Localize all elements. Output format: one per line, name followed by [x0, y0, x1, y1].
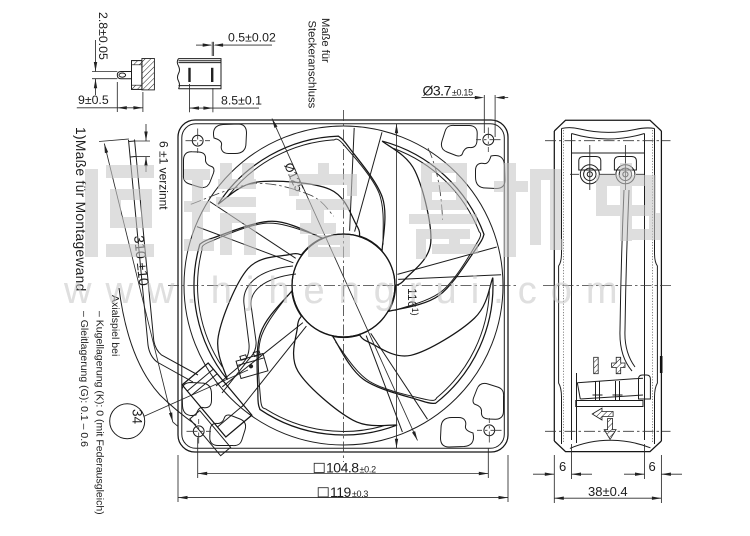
svg-text:Maße für: Maße für [319, 18, 331, 63]
svg-text:6 ±1 verzinnt: 6 ±1 verzinnt [157, 141, 171, 210]
svg-text:6: 6 [649, 459, 656, 474]
svg-text:9±0.5: 9±0.5 [78, 93, 109, 107]
svg-text:Steckeranschluss: Steckeranschluss [306, 21, 318, 109]
svg-text:6: 6 [559, 459, 566, 474]
svg-text:– Kugellagerung (K): 0 (mit Fe: – Kugellagerung (K): 0 (mit Federausglei… [94, 311, 106, 515]
svg-text:0.5±0.02: 0.5±0.02 [228, 31, 276, 45]
svg-text:8.5±0.1: 8.5±0.1 [221, 94, 262, 108]
svg-text:2.8±0.05: 2.8±0.05 [96, 12, 110, 60]
svg-text:34: 34 [130, 409, 145, 425]
svg-text:38±0.4: 38±0.4 [588, 484, 628, 499]
svg-text:– Gleitlagerung (G): 0.1 – 0.6: – Gleitlagerung (G): 0.1 – 0.6 [78, 311, 90, 447]
